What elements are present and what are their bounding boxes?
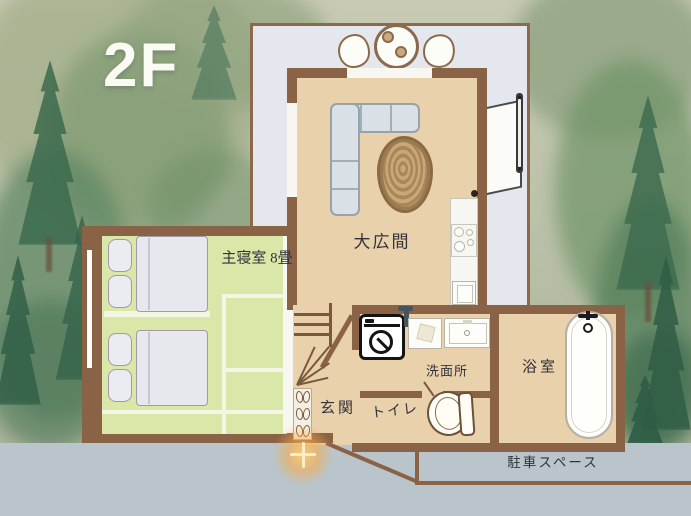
toilet-tank (457, 392, 475, 437)
room-label-entrance: 玄関 (320, 397, 356, 418)
lamp-sparkle (302, 442, 305, 468)
room-label-bedroom: 主寝室 8畳 (221, 247, 292, 268)
screen-rod-icon (516, 93, 523, 173)
washer-drum (369, 330, 393, 354)
wall-segment (616, 305, 625, 452)
room-label-parking: 駐車スペース (507, 451, 598, 471)
west-window-opening (287, 103, 297, 197)
wash-counter (408, 318, 442, 349)
pillow-icon (108, 275, 132, 308)
stair-tread (294, 313, 330, 316)
floor-label: 2F (103, 30, 179, 101)
sofa-divider (332, 188, 358, 190)
terrace-door-opening (347, 68, 432, 78)
room-label-bathroom: 浴室 (522, 356, 558, 377)
pillow-icon (108, 369, 132, 402)
tatami-line (102, 410, 292, 414)
bed-fold-line (148, 332, 150, 404)
kitchen-sink-icon (452, 281, 476, 305)
washbasin-tap (463, 320, 472, 324)
sofa-divider (390, 105, 392, 131)
burner (454, 241, 465, 252)
room-label-washroom: 洗面所 (426, 361, 468, 380)
tatami-line (222, 368, 292, 372)
pillow-icon (108, 333, 132, 366)
stove-icon (451, 224, 477, 257)
tatami-line (222, 294, 292, 298)
tree-trunk (645, 282, 651, 322)
sofa-seam-patch (332, 130, 358, 135)
sofa-divider (360, 105, 362, 131)
burner (454, 227, 464, 237)
burner (467, 239, 474, 246)
cup-icon (395, 46, 407, 58)
washbasin-icon (444, 318, 490, 348)
washer-drawer (365, 319, 374, 323)
stair-tread (294, 333, 330, 336)
sink-basin (457, 285, 473, 303)
wall-segment (477, 68, 487, 310)
towel-icon (416, 323, 435, 342)
bed-mattress (136, 236, 208, 312)
sofa-divider (332, 160, 358, 162)
bed-mattress (136, 330, 208, 406)
washer-glass-slash (377, 337, 391, 351)
tree-trunk (46, 238, 52, 272)
wall-segment (490, 305, 499, 452)
bath-faucet-icon (586, 311, 590, 320)
stair-tread (294, 323, 330, 326)
washbasin-drain (464, 330, 470, 336)
chair-icon (338, 34, 370, 68)
burner (466, 229, 473, 236)
washer-panel-line (364, 324, 400, 327)
floorplan-canvas: 2F 大広間 主寝室 8畳 玄関 洗面所 トイレ 浴室 駐車スペース (0, 0, 691, 516)
bed-icon (104, 330, 208, 406)
bed-fold-line (148, 238, 150, 310)
washing-machine-icon (359, 314, 405, 360)
bed-icon (104, 236, 208, 312)
bedroom-window (87, 250, 92, 368)
pillow-icon (108, 239, 132, 272)
bath-drain-icon (583, 323, 593, 333)
room-label-living: 大広間 (354, 228, 411, 253)
wall-post-dot (471, 190, 478, 197)
cup-icon (382, 31, 394, 43)
parking-border (415, 481, 691, 485)
shoe-icon (302, 391, 311, 404)
toilet-wall (360, 391, 422, 398)
shoe-icon (302, 408, 311, 421)
